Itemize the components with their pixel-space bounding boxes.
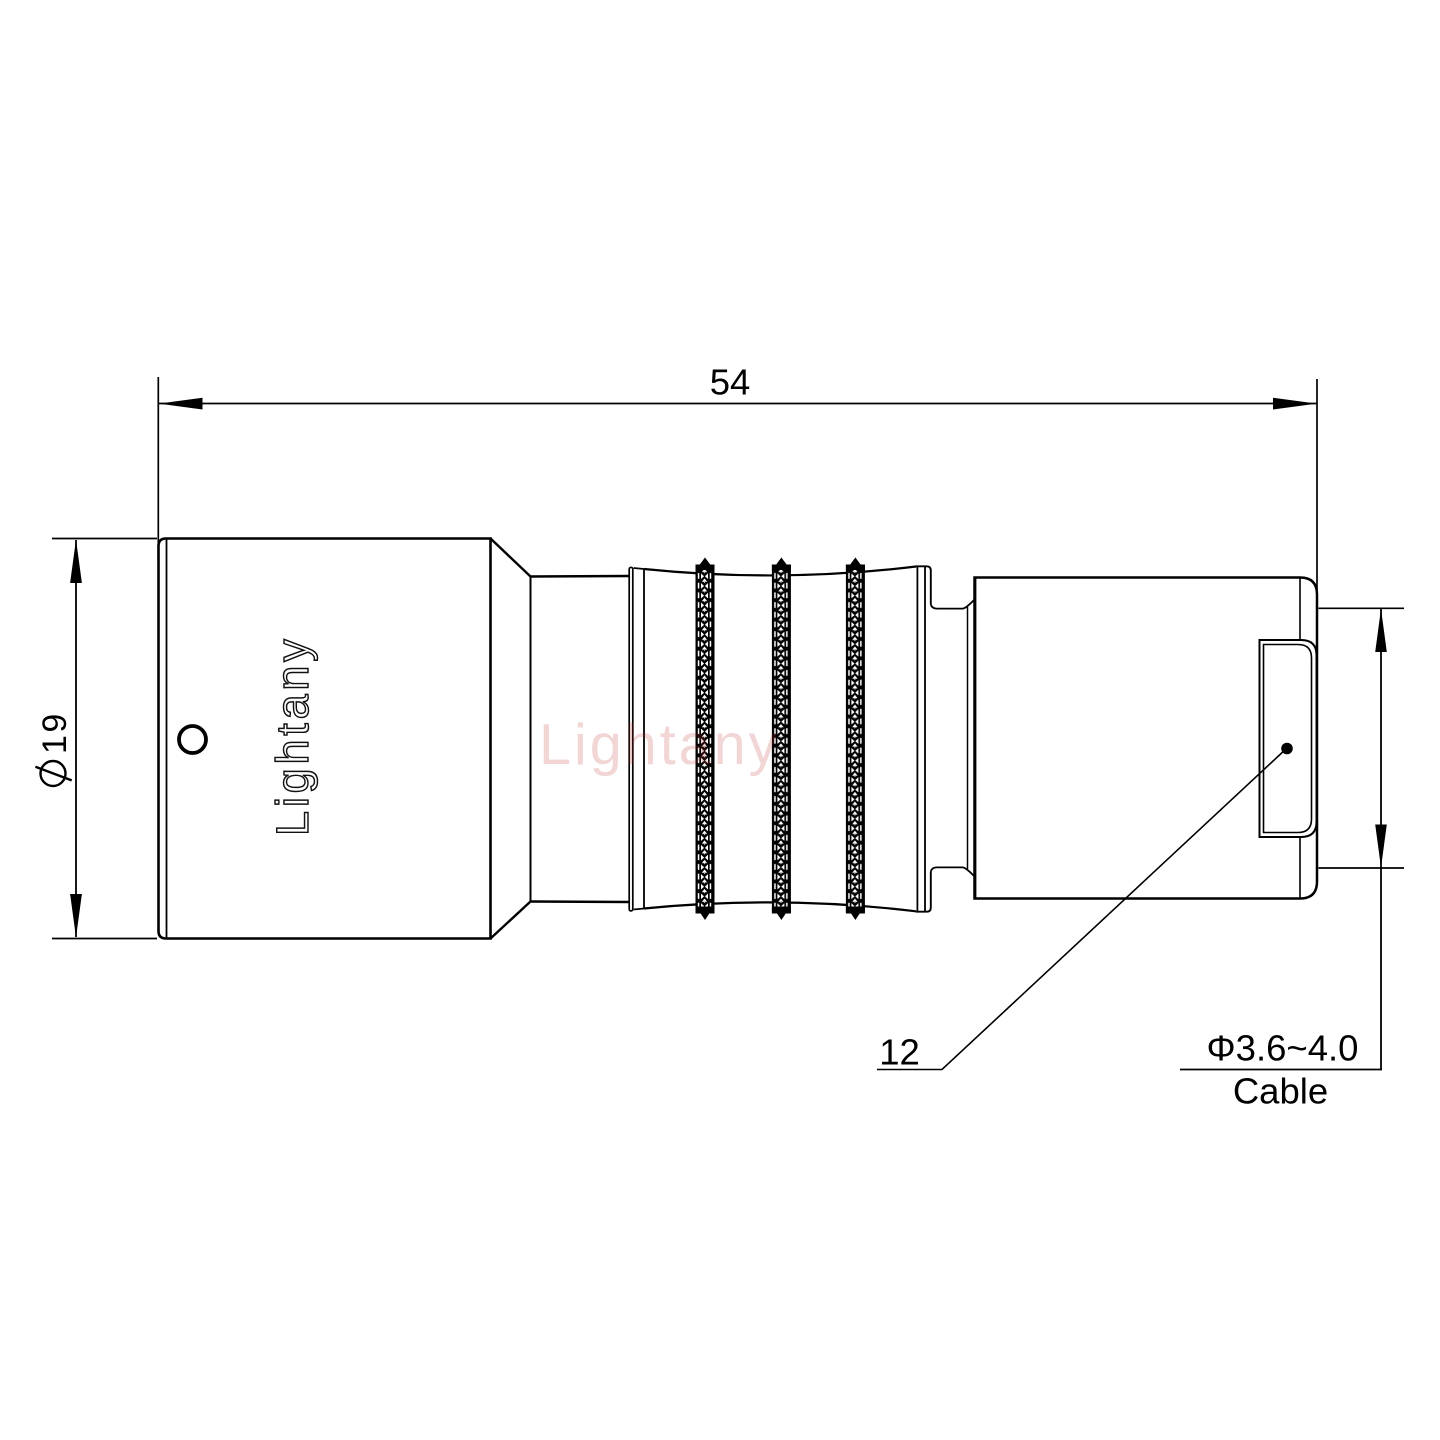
svg-text:Lightany: Lightany	[267, 635, 318, 836]
svg-text:54: 54	[710, 362, 751, 403]
svg-text:Lightany: Lightany	[539, 713, 780, 777]
svg-text:12: 12	[879, 1032, 920, 1073]
svg-text:Φ3.6~4.0: Φ3.6~4.0	[1207, 1028, 1359, 1069]
svg-text:Cable: Cable	[1233, 1071, 1328, 1112]
svg-text:19: 19	[36, 711, 74, 754]
